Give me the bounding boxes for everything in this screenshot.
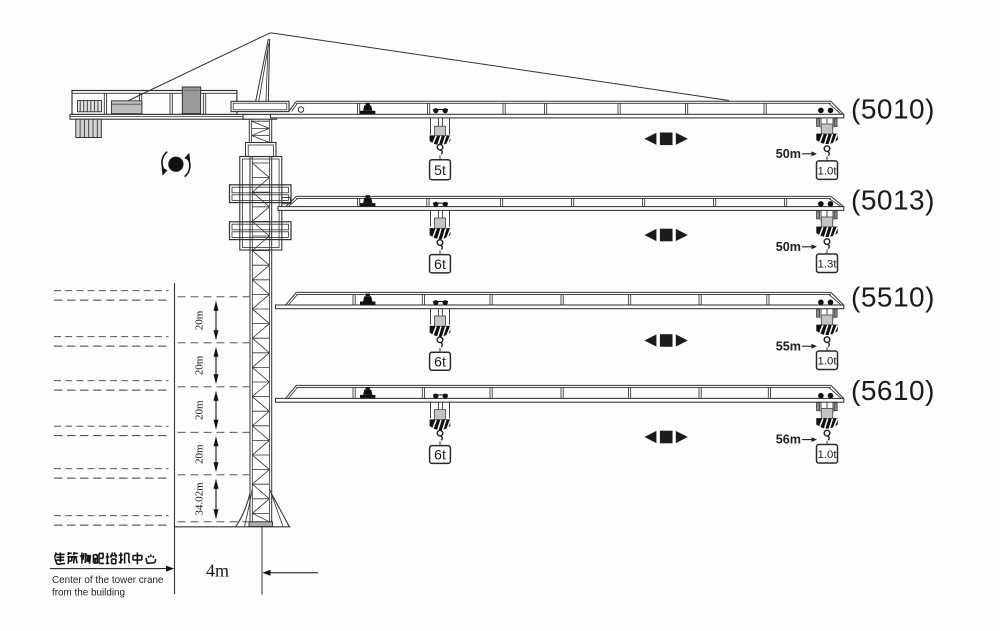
svg-text:50m: 50m — [776, 240, 801, 254]
svg-text:(5010): (5010) — [851, 94, 935, 125]
svg-text:20m: 20m — [194, 355, 206, 375]
svg-text:6t: 6t — [434, 353, 446, 369]
svg-text:Center of the tower crane: Center of the tower crane — [52, 575, 164, 586]
svg-text:(5510): (5510) — [851, 282, 935, 313]
svg-text:1.0t: 1.0t — [818, 165, 838, 177]
svg-text:20m: 20m — [194, 400, 206, 420]
svg-text:50m: 50m — [776, 147, 801, 161]
svg-text:1.0t: 1.0t — [818, 449, 838, 461]
svg-text:20m: 20m — [194, 310, 206, 330]
svg-text:1.0t: 1.0t — [818, 355, 838, 367]
svg-text:55m: 55m — [776, 339, 801, 353]
svg-text:(5013): (5013) — [851, 185, 935, 216]
svg-text:(5610): (5610) — [851, 375, 935, 406]
svg-text:6t: 6t — [434, 256, 446, 272]
svg-text:1.3t: 1.3t — [818, 258, 838, 270]
svg-text:6t: 6t — [434, 447, 446, 463]
svg-text:from the building: from the building — [52, 588, 125, 599]
svg-text:20m: 20m — [194, 444, 206, 464]
svg-text:4m: 4m — [206, 561, 229, 581]
svg-text:5t: 5t — [434, 162, 446, 178]
svg-text:56m: 56m — [776, 433, 801, 447]
svg-text:34.02m: 34.02m — [194, 482, 206, 516]
